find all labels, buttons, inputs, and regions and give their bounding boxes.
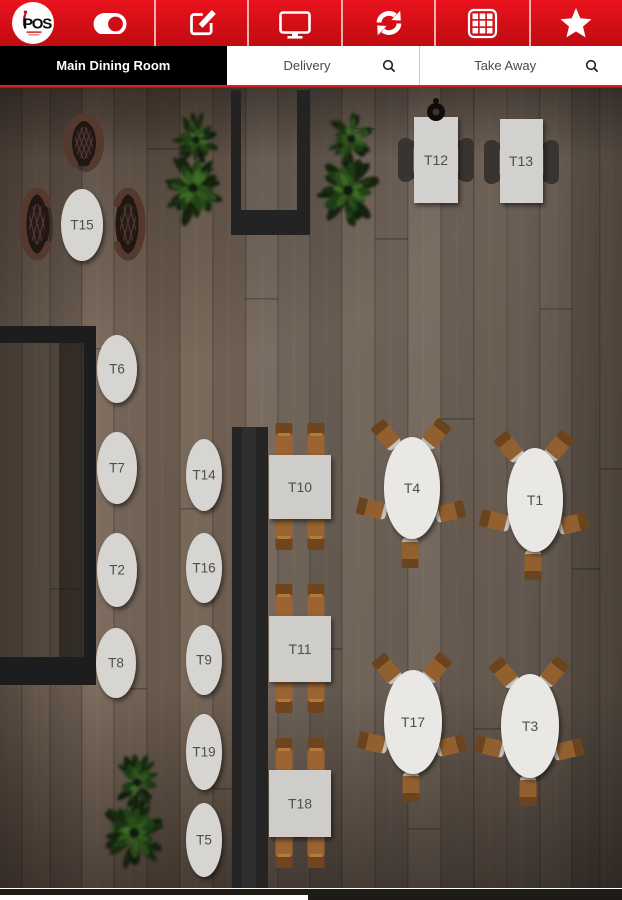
svg-text:T18: T18 [288,796,312,812]
svg-text:POS: POS [23,16,52,33]
svg-text:T2: T2 [109,563,125,578]
svg-text:T17: T17 [401,714,425,730]
svg-text:T15: T15 [70,218,93,233]
svg-text:T6: T6 [109,362,125,377]
svg-text:T1: T1 [527,492,544,508]
svg-text:T4: T4 [404,480,421,496]
svg-text:T9: T9 [196,653,212,668]
svg-text:T14: T14 [192,468,216,483]
svg-text:T8: T8 [108,656,124,671]
svg-text:T12: T12 [424,152,448,168]
svg-text:T13: T13 [509,153,533,169]
svg-text:T19: T19 [192,745,215,760]
svg-text:T5: T5 [196,833,212,848]
svg-text:T7: T7 [109,461,125,476]
svg-text:T3: T3 [522,718,539,734]
svg-text:T11: T11 [288,641,311,657]
svg-text:T16: T16 [192,561,215,576]
svg-text:T10: T10 [288,479,312,495]
